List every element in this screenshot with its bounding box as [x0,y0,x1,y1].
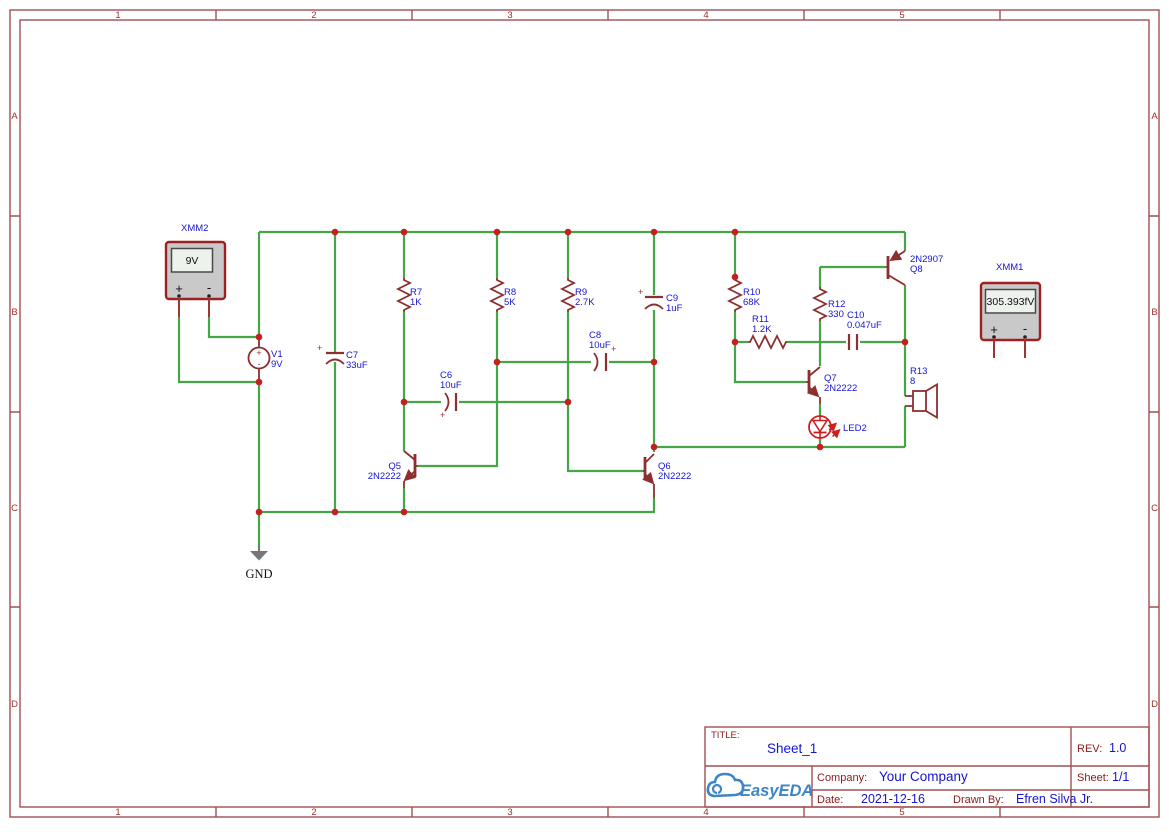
row-label: D [1151,699,1158,710]
v1-plus-mark: + [256,348,261,358]
drawn-by-label: Drawn By: [953,794,1004,806]
r10-value-label: 68K [743,297,761,308]
component-c7[interactable]: + C7 33uF [317,343,368,371]
col-label: 5 [899,10,904,21]
v1-value-label: 9V [271,359,283,370]
q5-value-label: 2N2222 [368,471,401,482]
title-block: TITLE: Sheet_1 REV: 1.0 Company: Your Co… [705,727,1149,807]
date-label: Date: [817,794,843,806]
easyeda-logo-text: EasyEDA [740,782,813,800]
row-label: C [1151,503,1158,514]
multimeter-xmm1[interactable]: XMM1 305.393fV + - [981,262,1040,358]
sheet-label: Sheet: [1077,772,1109,784]
drawn-by-value: Efren Silva Jr. [1016,792,1093,806]
xmm2-minus-terminal: - [207,280,211,295]
col-label: 3 [507,807,512,818]
easyeda-logo: EasyEDA [708,774,814,800]
component-led2[interactable]: LED2 [809,415,867,439]
c8-value-label: 10uF [589,340,611,351]
schematic-canvas[interactable]: 1 2 3 4 5 1 2 3 4 5 A B C D A B C D [0,0,1169,827]
col-label: 3 [507,10,512,21]
component-r10[interactable]: R10 68K [729,278,761,312]
ruler-rows-right: A B C D [1151,111,1158,710]
component-r13-speaker[interactable]: R13 8 [905,366,937,418]
row-label: B [11,307,17,318]
sheet-title[interactable]: Sheet_1 [767,741,817,756]
r9-value-label: 2.7K [575,297,595,308]
component-c9[interactable]: + C9 1uF [638,287,683,314]
led2-ref-label: LED2 [843,423,867,434]
component-q6[interactable]: Q6 2N2222 [643,454,691,498]
component-q8[interactable]: 2N2907 Q8 [886,251,943,285]
xmm1-label: XMM1 [996,262,1023,273]
multimeter-xmm2[interactable]: XMM2 9V + - [166,223,225,317]
rev-label: REV: [1077,743,1102,755]
component-c6[interactable]: + C6 10uF [440,370,462,420]
r12-value-label: 330 [828,309,844,320]
q7-value-label: 2N2222 [824,383,857,394]
c7-plus-mark: + [317,343,322,353]
c7-value-label: 33uF [346,360,368,371]
component-q5[interactable]: Q5 2N2222 [368,451,418,488]
company-value: Your Company [879,769,968,784]
col-label: 2 [311,10,316,21]
title-label: TITLE: [711,730,740,741]
schematic-wires[interactable] [179,232,905,545]
v1-minus-mark: - [258,359,261,369]
row-label: D [11,699,18,710]
company-label: Company: [817,772,867,784]
c6-value-label: 10uF [440,380,462,391]
ground-label: GND [245,567,272,581]
c9-plus-mark: + [638,287,643,297]
r8-value-label: 5K [504,297,516,308]
row-label: B [1151,307,1157,318]
components-layer: + - V1 9V + C7 33uF R7 1K R8 5K R9 [245,251,943,581]
c8-plus-mark: + [611,344,616,354]
xmm1-plus-terminal: + [990,322,998,337]
col-label: 4 [703,10,708,21]
component-r7[interactable]: R7 1K [398,278,422,312]
xmm2-display-value: 9V [186,255,199,267]
r7-value-label: 1K [410,297,422,308]
q6-value-label: 2N2222 [658,471,691,482]
component-r9[interactable]: R9 2.7K [562,278,595,312]
xmm1-minus-terminal: - [1023,321,1027,336]
c9-value-label: 1uF [666,303,683,314]
row-label: A [11,111,18,122]
rev-value: 1.0 [1109,741,1126,755]
easyeda-cloud-icon [708,774,743,796]
sheet-frame: 1 2 3 4 5 1 2 3 4 5 A B C D A B C D [10,10,1159,818]
r11-value-label: 1.2K [752,324,772,335]
col-label: 2 [311,807,316,818]
component-c10[interactable]: C10 0.047uF [847,310,882,350]
component-r12[interactable]: R12 330 [814,287,845,321]
c6-plus-mark: + [440,410,445,420]
ground-symbol[interactable]: GND [245,545,272,581]
junction-dots [256,229,909,516]
row-label: A [1151,111,1158,122]
component-v1[interactable]: + - V1 9V [249,337,284,382]
r13-value-label: 8 [910,376,915,387]
c10-value-label: 0.047uF [847,320,882,331]
xmm2-label: XMM2 [181,223,208,234]
component-r11[interactable]: R11 1.2K [748,314,788,348]
q8-ref-label: Q8 [910,264,923,275]
component-c8[interactable]: + C8 10uF [589,330,616,371]
component-q7[interactable]: Q7 2N2222 [806,367,857,404]
col-label: 1 [115,807,120,818]
xmm2-plus-terminal: + [175,281,183,296]
schematic-sheet: 1 2 3 4 5 1 2 3 4 5 A B C D A B C D [0,0,1169,827]
component-r8[interactable]: R8 5K [491,278,516,312]
ruler-rows-left: A B C D [11,111,18,710]
col-label: 5 [899,807,904,818]
sheet-value: 1/1 [1112,770,1129,784]
row-label: C [11,503,18,514]
date-value: 2021-12-16 [861,792,925,806]
col-label: 1 [115,10,120,21]
col-label: 4 [703,807,708,818]
xmm1-display-value: 305.393fV [987,296,1035,308]
